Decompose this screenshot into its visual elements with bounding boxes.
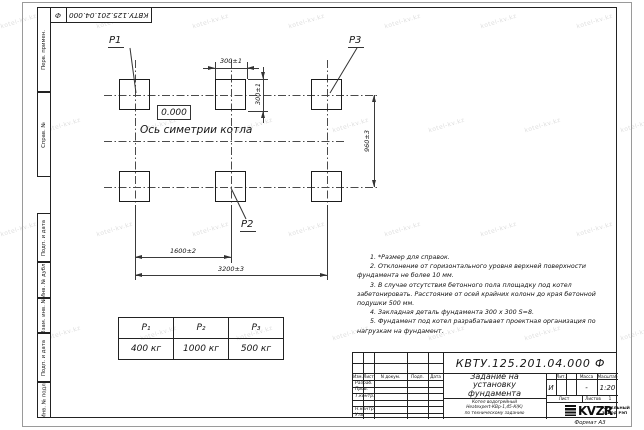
plate-top-right xyxy=(311,79,342,110)
company-line-2: ЗАВОД РЭП xyxy=(602,411,630,416)
note-5: 5. Фундамент под котел разрабатывает про… xyxy=(357,317,605,335)
load-table-value-row: 400 кг 1000 кг 500 кг xyxy=(119,339,284,360)
dim-line-half xyxy=(135,257,231,258)
row-utv: Утв. xyxy=(355,413,364,420)
col-podp: Подп. xyxy=(407,374,428,380)
load-value-p3: 500 кг xyxy=(229,339,284,360)
plate-bottom-left xyxy=(119,171,150,202)
drawing-title: Задание на установку фундамента xyxy=(464,373,526,398)
lit-value: И xyxy=(546,380,556,395)
dim-arrow xyxy=(372,180,376,187)
format-label: Формат А3 xyxy=(535,420,644,426)
callout-p2: P2 xyxy=(240,219,256,232)
dim-half: 1600±2 xyxy=(153,247,213,255)
margin-cell-vzam-inv: Взам. инв. № xyxy=(37,298,51,333)
margin-cell-sprav-no: Справ. № xyxy=(37,92,51,177)
note-2: 2. Отклонение от горизонтального уровня … xyxy=(357,262,605,280)
subtitle-line-3: по техническому заданию xyxy=(443,411,546,417)
col-data: Дата xyxy=(428,374,443,380)
margin-cell-podp-data-2: Подп. и дата xyxy=(37,333,51,382)
load-header-p3: P₃ xyxy=(229,318,284,339)
plate-bottom-middle xyxy=(215,171,246,202)
note-1: 1. *Размер для справок. xyxy=(357,253,605,262)
line xyxy=(353,363,443,364)
dim-arrow xyxy=(208,66,215,70)
dim-line-full xyxy=(135,275,327,276)
dim-arrow xyxy=(372,95,376,102)
plate-top-left xyxy=(119,79,150,110)
dim-arrow xyxy=(224,255,231,259)
ext-line xyxy=(231,205,232,263)
kvzr-logo-icon xyxy=(565,405,576,416)
sheet-label: Лист xyxy=(546,396,582,402)
mass-header: Масса xyxy=(576,374,597,380)
load-header-p1: P₁ xyxy=(119,318,174,339)
notes-block: 1. *Размер для справок. 2. Отклонение от… xyxy=(357,253,605,336)
lit-header: Лит. xyxy=(546,374,576,380)
top-stamp-suffix-cell: Ф xyxy=(51,8,67,22)
load-table: P₁ P₂ P₃ 400 кг 1000 кг 500 кг xyxy=(118,317,284,360)
ext-line xyxy=(327,205,328,280)
callout-p1: P1 xyxy=(108,35,124,48)
dim-arrow xyxy=(320,273,327,277)
dim-arrow xyxy=(135,273,142,277)
symmetry-axis-label: Ось симетрии котла xyxy=(140,124,252,136)
dim-line-rows xyxy=(374,95,375,187)
sheets-label: Листов xyxy=(582,396,604,402)
sheets-value: 1 xyxy=(604,396,616,402)
load-value-p1: 400 кг xyxy=(119,339,174,360)
dim-arrow xyxy=(261,111,265,118)
top-stamp-number-cell: КВТУ.125.201.04.000 xyxy=(67,8,151,22)
load-table-header-row: P₁ P₂ P₃ xyxy=(119,318,284,339)
drawing-sheet: kotel-kv.kzkotel-kv.kzkotel-kv.kzkotel-k… xyxy=(0,0,644,430)
margin-cell-inv-dubl: Инв. № дубл. xyxy=(37,262,51,298)
margin-cell-inv-podl: Инв. № подл. xyxy=(37,382,51,418)
note-4: 4. Закладная деталь фундамента 300 х 300… xyxy=(357,308,605,317)
drawing-subtitle: Котел водогрейный Heatexpert-КВр-1,45-К(… xyxy=(443,400,546,417)
mass-value: - xyxy=(576,380,597,395)
scale-value: 1:20 xyxy=(597,380,618,395)
scale-header: Масштаб xyxy=(597,374,618,380)
margin-cell-podp-data-1: Подп. и дата xyxy=(37,213,51,262)
ext-line xyxy=(135,205,136,280)
plate-top-middle xyxy=(215,79,246,110)
symmetry-axis-line xyxy=(104,141,345,142)
col-list: Лист xyxy=(363,374,374,380)
drawing-title-cell: Задание на установку фундамента xyxy=(443,373,546,398)
dim-arrow xyxy=(247,66,254,70)
margin-cell-perv-primen: Перв. примен. xyxy=(37,7,51,92)
callout-p3: P3 xyxy=(348,35,364,48)
dim-full: 3200±3 xyxy=(201,265,261,273)
plate-bottom-right xyxy=(311,171,342,202)
load-value-p2: 1000 кг xyxy=(174,339,229,360)
col-dokum: N докум. xyxy=(374,374,407,380)
dim-rows: 960±3 xyxy=(363,123,371,159)
doc-number: КВТУ.125.201.04.000 Ф xyxy=(443,353,618,373)
dim-side-height: 300±1 xyxy=(254,76,262,112)
note-3: 3. В случае отсутствия бетонного пола пл… xyxy=(357,281,605,309)
dim-arrow xyxy=(135,255,142,259)
col-izm: Изм. xyxy=(353,374,363,380)
dim-top-width: 300±1 xyxy=(203,57,259,65)
elevation-mark: 0.000 xyxy=(157,105,191,120)
title-block: Изм. Лист N докум. Подп. Дата Разраб. Пр… xyxy=(352,352,617,418)
row-tkontr: Т.контр. xyxy=(355,394,375,401)
load-header-p2: P₂ xyxy=(174,318,229,339)
top-stamp: Ф КВТУ.125.201.04.000 xyxy=(50,7,152,23)
company-name: КОТЕЛЬНЫЙ ЗАВОД РЭП xyxy=(602,406,630,415)
